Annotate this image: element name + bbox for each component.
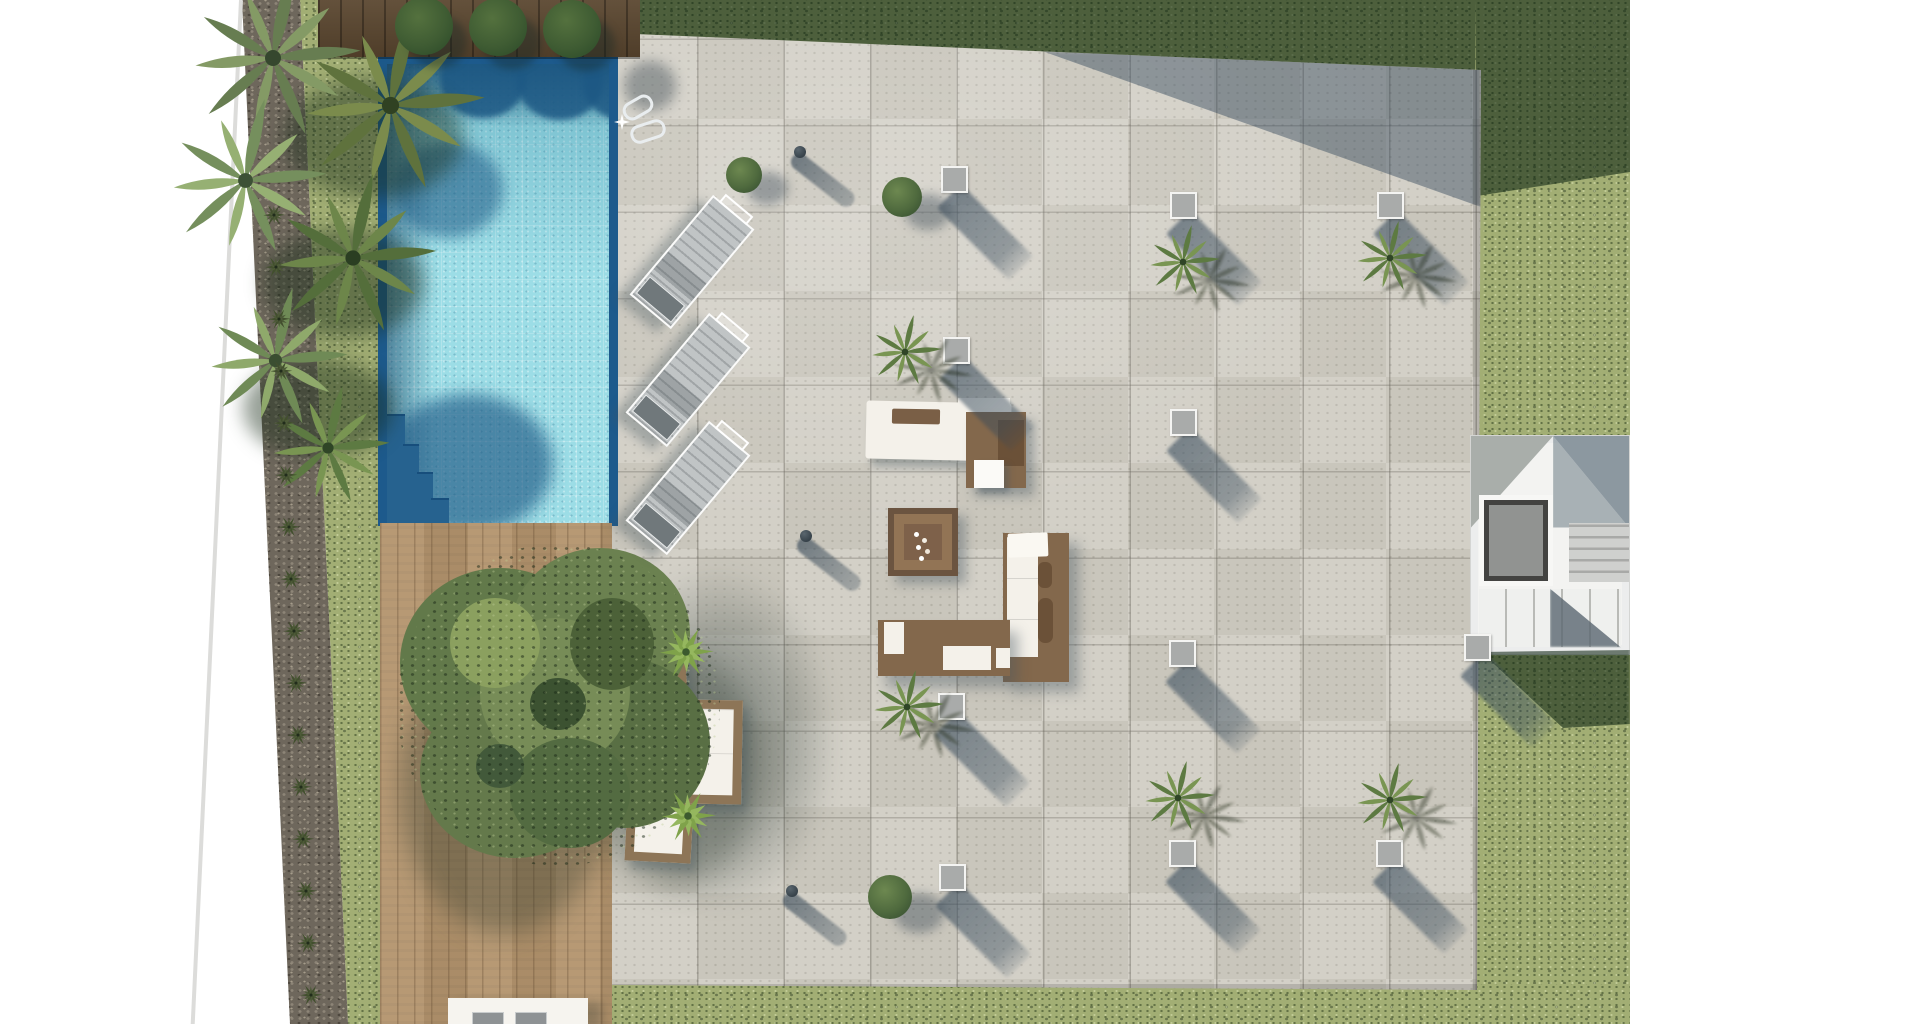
ladder-rail	[619, 91, 656, 123]
floor-light-square	[939, 864, 966, 891]
palm-tree	[863, 310, 947, 394]
floor-light-square	[1170, 409, 1197, 436]
border-plant	[288, 774, 314, 800]
bush	[726, 157, 762, 193]
border-plant	[271, 410, 297, 436]
planter-bush	[469, 0, 527, 56]
floor-light-square	[1169, 640, 1196, 667]
floor-light-square	[1170, 192, 1197, 219]
palm-cluster	[163, 0, 503, 548]
agave-plant	[656, 784, 720, 848]
building-shadow	[1042, 51, 1481, 207]
deck-table-item	[515, 1012, 547, 1024]
elevator-shaft	[1479, 495, 1553, 587]
border-plant	[283, 670, 309, 696]
border-plant	[266, 306, 292, 332]
grass-right-shadow-top	[1475, 0, 1630, 200]
border-plant	[293, 878, 319, 904]
border-plant	[278, 566, 304, 592]
agave-plant	[654, 620, 718, 684]
border-plant	[276, 514, 302, 540]
floor-light-square	[941, 166, 968, 193]
palm-tree	[1348, 216, 1432, 300]
deck-table	[448, 998, 588, 1024]
palm-tree	[1136, 756, 1220, 840]
sofa-cushion	[943, 646, 991, 670]
bollard-light	[800, 530, 812, 542]
corner-cushion	[996, 648, 1010, 668]
side-table	[974, 460, 1004, 488]
border-plant	[295, 930, 321, 956]
border-plant	[273, 462, 299, 488]
floor-light-square	[1377, 192, 1404, 219]
fan-palm	[258, 378, 398, 518]
deck-table-item	[472, 1012, 504, 1024]
border-plant	[298, 982, 324, 1008]
border-plant	[263, 254, 289, 280]
border-plant	[261, 202, 287, 228]
head-pillow	[1008, 532, 1049, 557]
bolster-pillow	[1038, 598, 1053, 643]
bollard-light	[794, 146, 806, 158]
planter-bush	[395, 0, 453, 55]
stair-treads	[1569, 523, 1629, 582]
ladder-rail	[628, 117, 668, 146]
villa-terrace-site-plan	[0, 0, 1920, 1024]
palm-tree	[1141, 220, 1225, 304]
bush	[868, 875, 912, 919]
elevator-cab	[1489, 505, 1543, 577]
bolster-pillow	[1038, 562, 1052, 588]
arm-pillow	[884, 622, 904, 654]
staircase-block	[1471, 436, 1629, 654]
border-plant	[290, 826, 316, 852]
floor-light-square	[1464, 634, 1491, 661]
palm-tree	[1348, 758, 1432, 842]
border-plant	[285, 722, 311, 748]
bush	[882, 177, 922, 217]
border-plant	[268, 358, 294, 384]
bollard-light	[786, 885, 798, 897]
grass-strip-bottom	[612, 984, 1630, 1024]
planter-bush	[543, 0, 601, 58]
palm-tree	[865, 665, 949, 749]
border-plant	[281, 618, 307, 644]
